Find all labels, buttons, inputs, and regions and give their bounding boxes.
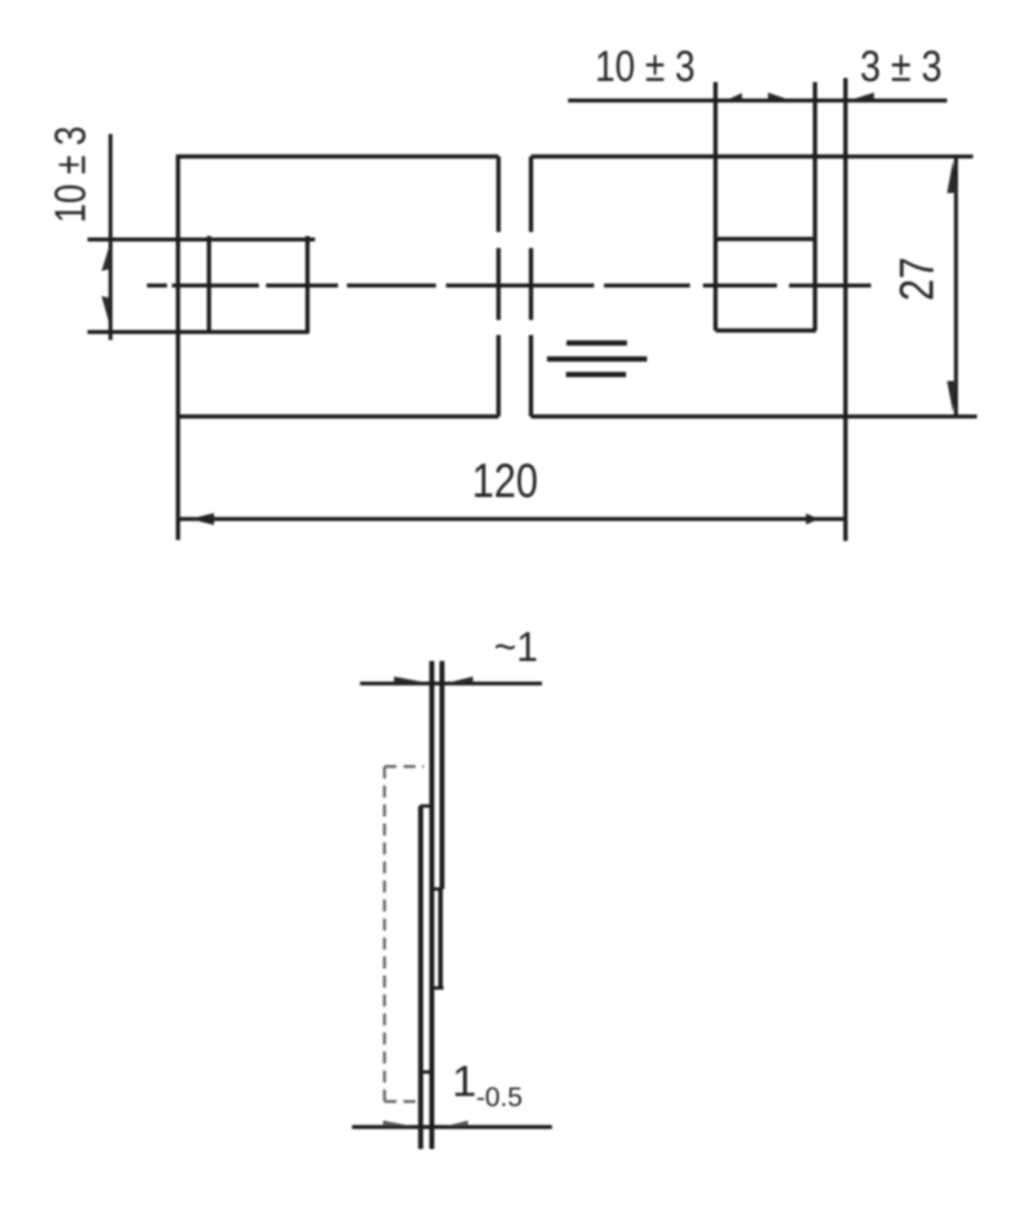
svg-text:120: 120 xyxy=(472,455,538,508)
svg-text:27: 27 xyxy=(891,257,944,301)
svg-text:3 ± 3: 3 ± 3 xyxy=(860,42,942,91)
svg-text:-0.5: -0.5 xyxy=(476,1082,523,1112)
svg-text:10 ± 3: 10 ± 3 xyxy=(46,126,95,223)
svg-text:~1: ~1 xyxy=(494,623,538,670)
svg-text:1: 1 xyxy=(452,1057,476,1106)
svg-text:10 ± 3: 10 ± 3 xyxy=(595,42,695,91)
